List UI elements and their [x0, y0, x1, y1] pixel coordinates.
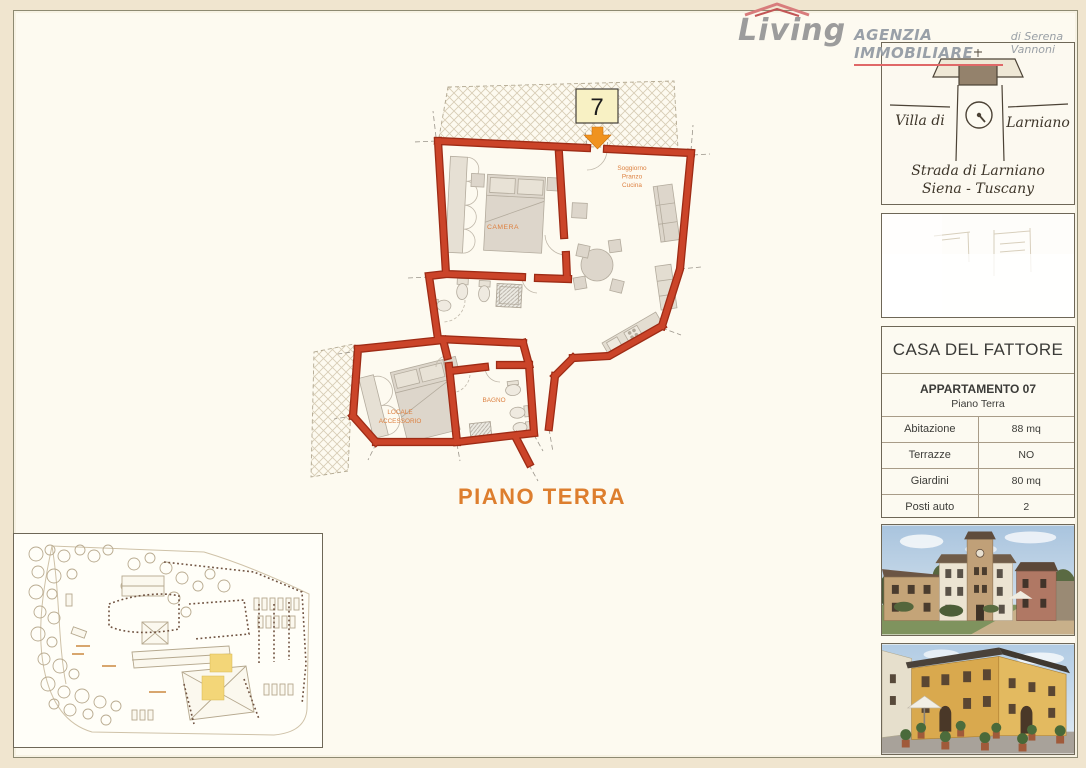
row-value: 88 mq	[978, 417, 1075, 442]
row-label: Abitazione	[882, 417, 978, 442]
label-locale-1: LOCALE	[387, 409, 412, 416]
agency-owner: di Serena Vannoni	[1011, 30, 1084, 56]
unit-number: 7	[590, 94, 603, 121]
villa-name-right: Larniano	[1005, 115, 1070, 131]
villa-address-1: Strada di Larniano	[911, 163, 1045, 179]
buildings	[66, 576, 299, 720]
table-row: Abitazione 88 mq	[882, 417, 1074, 443]
label-soggiorno-1: Soggiorno	[617, 165, 647, 172]
row-value: 2	[978, 495, 1075, 518]
building-name: CASA DEL FATTORE	[882, 327, 1074, 374]
villa-card: Villa di Larniano Strada di Larniano Sie…	[881, 42, 1075, 205]
label-soggiorno-3: Cucina	[622, 182, 642, 189]
row-label: Posti auto	[882, 495, 978, 518]
label-soggiorno-2: Pranzo	[622, 174, 643, 181]
brochure-page: Living AGENZIA IMMOBILIARE di Serena Van…	[0, 0, 1086, 768]
agency-logo: Living AGENZIA IMMOBILIARE di Serena Van…	[738, 8, 1084, 54]
agency-tagline: AGENZIA IMMOBILIARE	[854, 26, 1003, 66]
table-row: Terrazze NO	[882, 443, 1074, 469]
apartment-heading: APPARTAMENTO 07 Piano Terra	[882, 374, 1074, 417]
furniture	[359, 156, 680, 450]
brand-name: Living	[738, 13, 846, 48]
site-plan	[13, 533, 323, 748]
villa-name-left: Villa di	[895, 113, 945, 129]
row-value: 80 mq	[978, 469, 1075, 494]
label-camera: CAMERA	[487, 224, 519, 231]
brand-wrap: Living	[738, 8, 846, 54]
row-value: NO	[978, 443, 1075, 468]
site-plan-drawing	[14, 534, 322, 747]
label-locale-2: ACCESSORIO	[379, 418, 422, 425]
apartment-floor: Piano Terra	[882, 398, 1074, 410]
table-row: Giardini 80 mq	[882, 469, 1074, 495]
roof-icon	[741, 1, 813, 17]
photo-farmhouse	[881, 643, 1075, 755]
row-label: Giardini	[882, 469, 978, 494]
unit-badge: 7	[576, 89, 618, 123]
apartment-number: APPARTAMENTO 07	[882, 382, 1074, 396]
photo-villa-tower	[881, 524, 1075, 636]
label-bagno: BAGNO	[482, 397, 505, 404]
floor-plan-drawing: 7 CAMERA Soggiorno Pranzo Cucina LOCALE …	[310, 75, 710, 495]
faded-sketch	[881, 213, 1075, 318]
apartment-info-card: CASA DEL FATTORE APPARTAMENTO 07 Piano T…	[881, 326, 1075, 518]
table-row: Posti auto 2	[882, 495, 1074, 518]
villa-address-2: Siena - Tuscany	[922, 181, 1035, 197]
row-label: Terrazze	[882, 443, 978, 468]
floor-caption: PIANO TERRA	[412, 484, 672, 510]
villa-tower-drawing: Villa di Larniano Strada di Larniano Sie…	[882, 43, 1074, 204]
